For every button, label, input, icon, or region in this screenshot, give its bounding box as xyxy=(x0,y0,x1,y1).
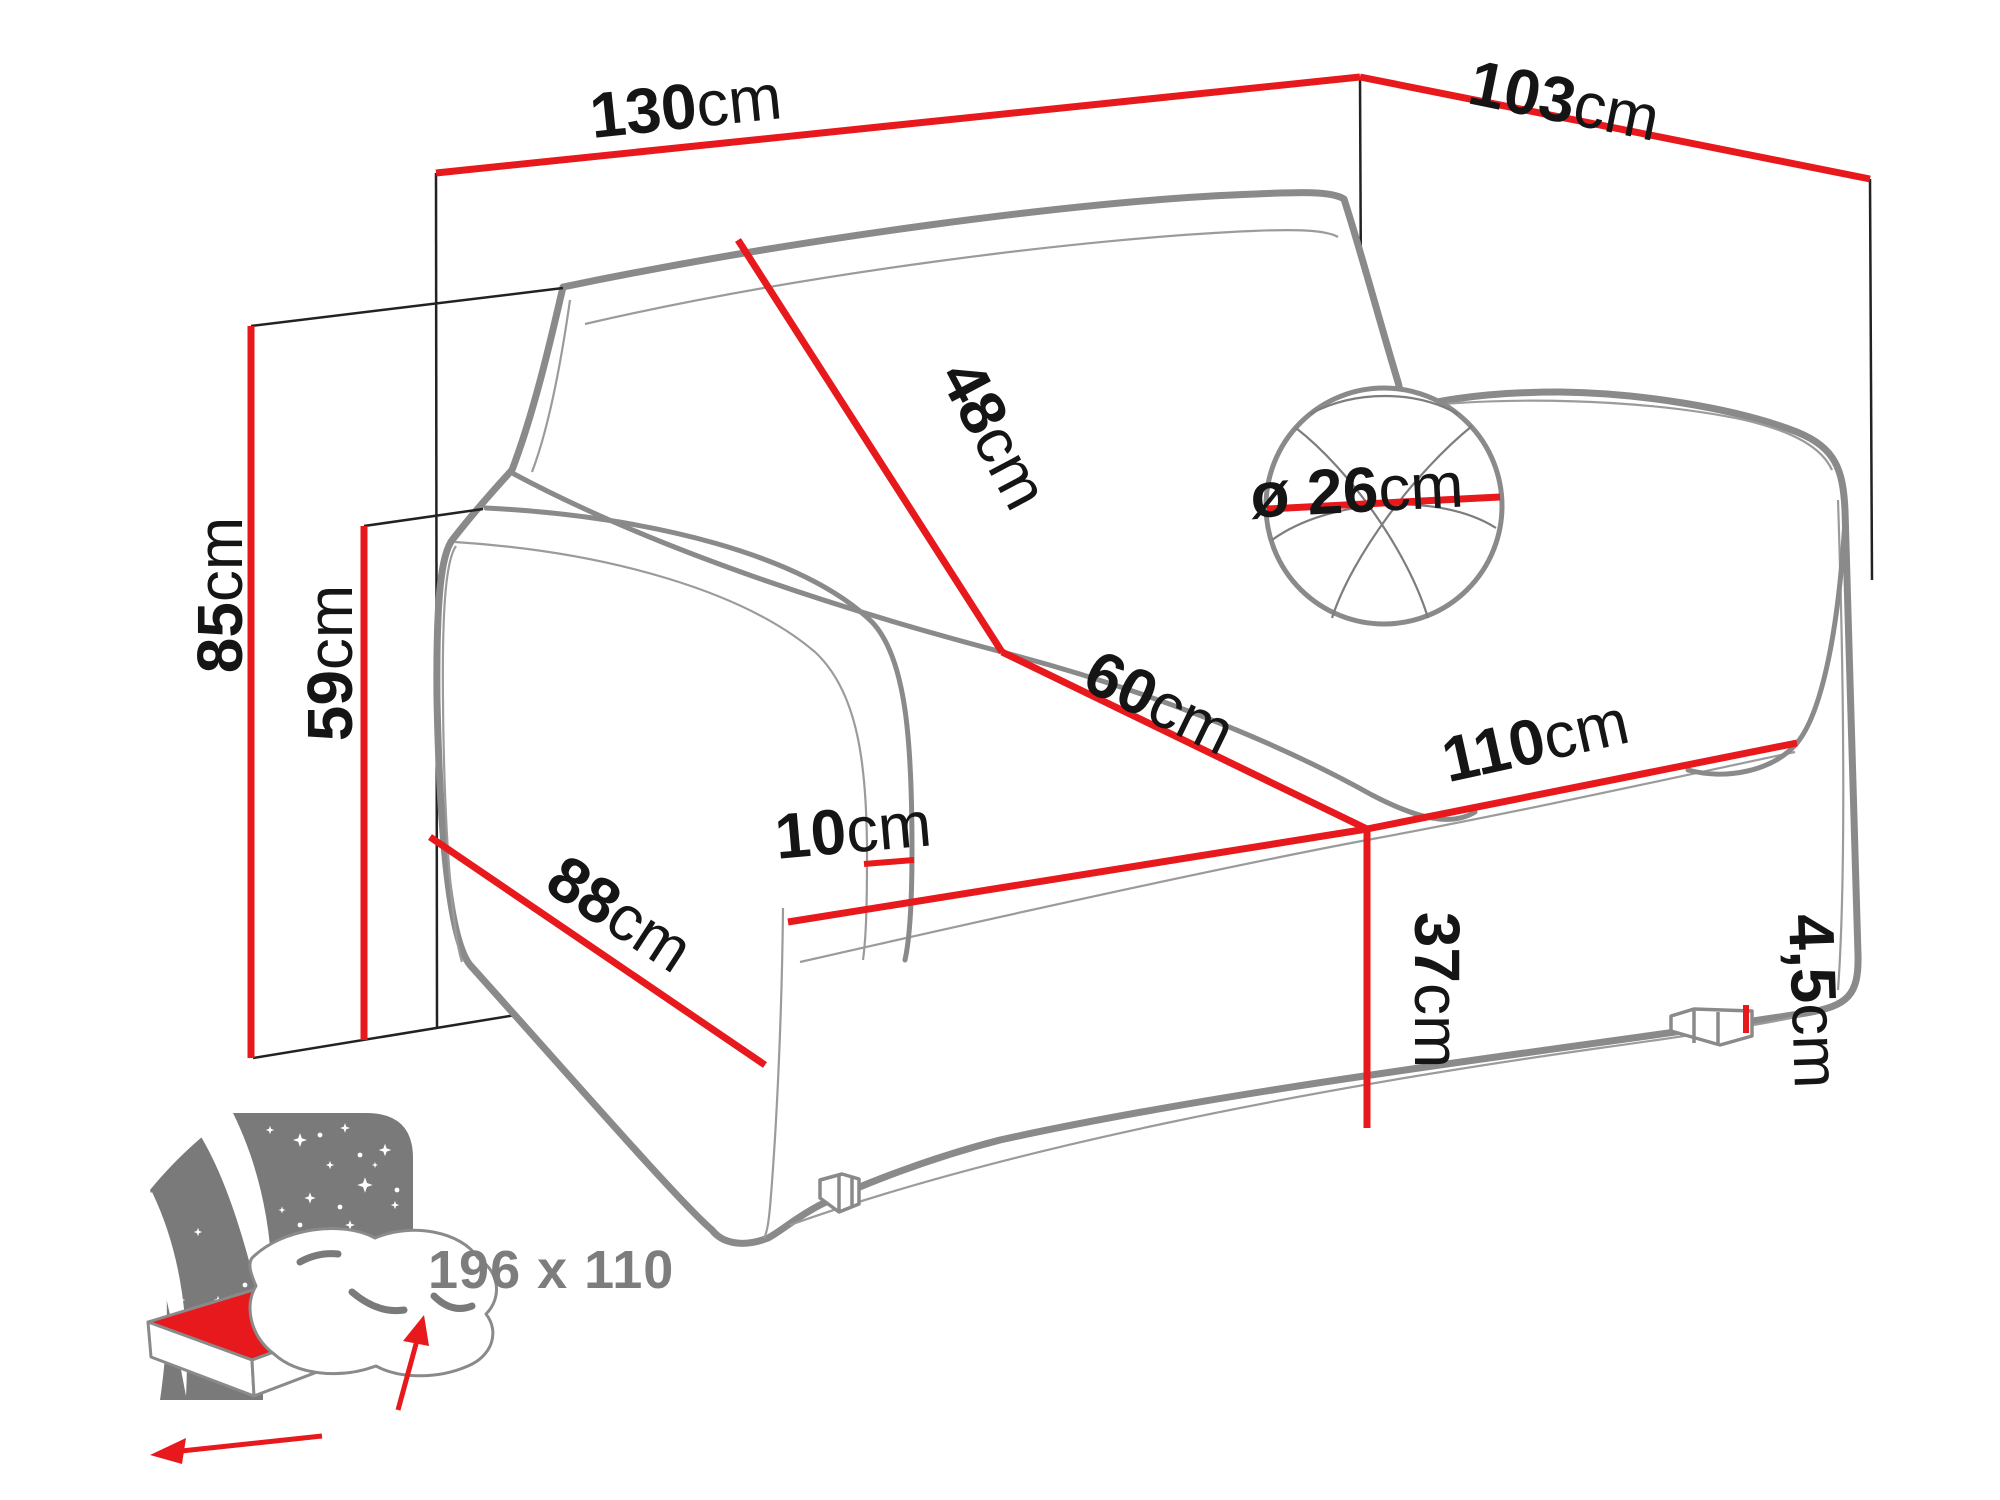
label-total-depth: 103cm xyxy=(1463,46,1666,155)
sofa-bed-sleeping-icon: 196 x 110 xyxy=(138,1113,674,1464)
label-sleeping-area: 196 x 110 xyxy=(428,1240,674,1300)
extension-line-height-top xyxy=(251,288,563,326)
label-armrest-width: 10cm xyxy=(772,787,934,872)
diagram-canvas: 130cm 103cm 85cm 59cm 48cm ø 26cm 60cm 1… xyxy=(0,0,2000,1500)
label-total-height: 85cm xyxy=(184,517,256,674)
label-leg-height: 4,5cm xyxy=(1775,913,1853,1090)
label-armrest-height: 59cm xyxy=(294,585,366,742)
sofa-diagram: 130cm 103cm 85cm 59cm 48cm ø 26cm 60cm 1… xyxy=(0,0,2000,1500)
extension-line-right-vertical xyxy=(1870,179,1872,580)
extension-line-floor xyxy=(253,1014,522,1058)
dim-line-total-width xyxy=(436,77,1360,173)
sofa-leg-front-right xyxy=(1671,1009,1752,1045)
label-cushion-diameter: ø 26cm xyxy=(1248,448,1465,531)
label-seat-height: 37cm xyxy=(1401,912,1473,1069)
